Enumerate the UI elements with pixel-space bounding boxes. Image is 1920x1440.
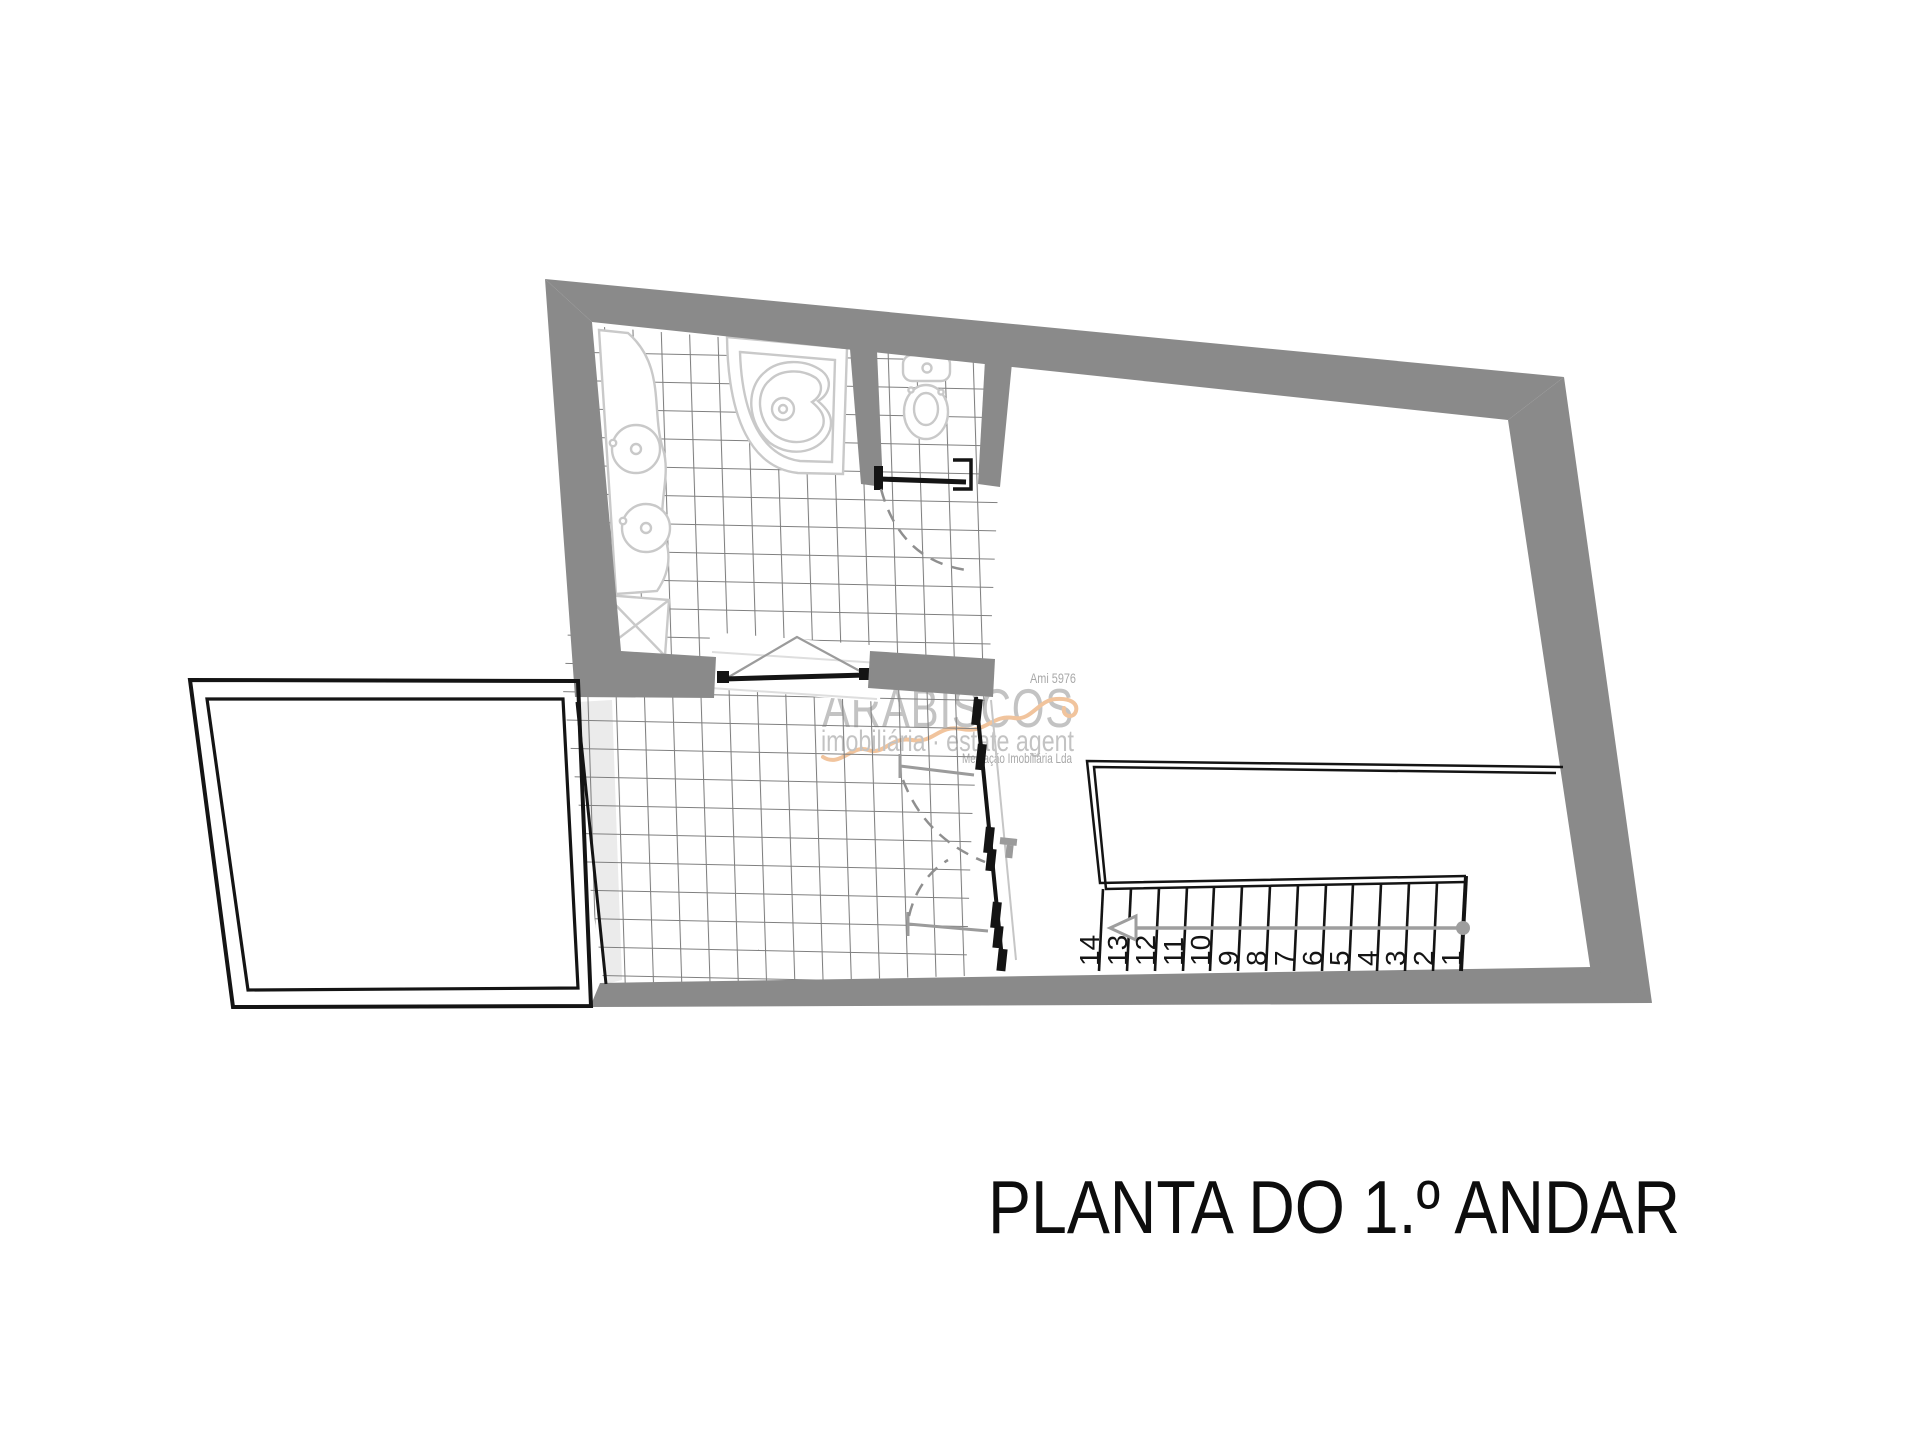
step-number: 10 xyxy=(1185,935,1216,966)
step-number: 1 xyxy=(1436,950,1467,966)
terrace-parapet-outer xyxy=(190,680,591,1007)
step-number: 4 xyxy=(1352,950,1383,966)
floor-plan-page: Ami 5976 ARABISCOS imobiliária · estate … xyxy=(0,0,1920,1440)
toilet-bowl xyxy=(914,393,938,425)
door-jamb xyxy=(874,466,883,490)
step-number: 12 xyxy=(1130,935,1161,966)
page-title: PLANTA DO 1.º ANDAR xyxy=(988,1165,1680,1249)
washbasin-tap xyxy=(620,518,626,524)
stairwell-outline-outer xyxy=(1087,761,1563,883)
toilet-hinge xyxy=(938,389,943,394)
door-leaf-line xyxy=(880,479,966,482)
stairwell-outline-inner xyxy=(1094,767,1556,889)
washbasin-drain xyxy=(631,444,641,454)
toilet-button xyxy=(923,364,932,373)
washbasin-drain xyxy=(641,523,651,533)
wall-east xyxy=(1508,377,1652,1003)
step-number: 13 xyxy=(1102,935,1133,966)
washbasin-tap xyxy=(610,440,616,446)
terrace-parapet-inner xyxy=(207,699,578,990)
step-number: 14 xyxy=(1074,935,1105,966)
stairwell-void xyxy=(1087,761,1563,889)
bathtub-drain-dot xyxy=(779,405,787,413)
stair-guide-dot xyxy=(1456,921,1470,935)
step-number: 5 xyxy=(1324,950,1355,966)
step-number: 3 xyxy=(1380,950,1411,966)
step-number: 9 xyxy=(1213,950,1244,966)
toilet-hinge xyxy=(908,387,913,392)
staircase: 14 13 12 11 10 9 8 7 6 5 4 3 2 1 xyxy=(1074,876,1470,971)
door-handle-icon xyxy=(1000,837,1018,858)
stair-step-numbers: 14 13 12 11 10 9 8 7 6 5 4 3 2 1 xyxy=(1074,935,1467,966)
step-number: 2 xyxy=(1408,950,1439,966)
terrace xyxy=(190,680,606,1007)
window-jamb xyxy=(717,671,729,683)
step-number: 8 xyxy=(1241,950,1272,966)
step-number: 7 xyxy=(1269,950,1300,966)
floor-plan-drawing: Ami 5976 ARABISCOS imobiliária · estate … xyxy=(0,0,1920,1440)
